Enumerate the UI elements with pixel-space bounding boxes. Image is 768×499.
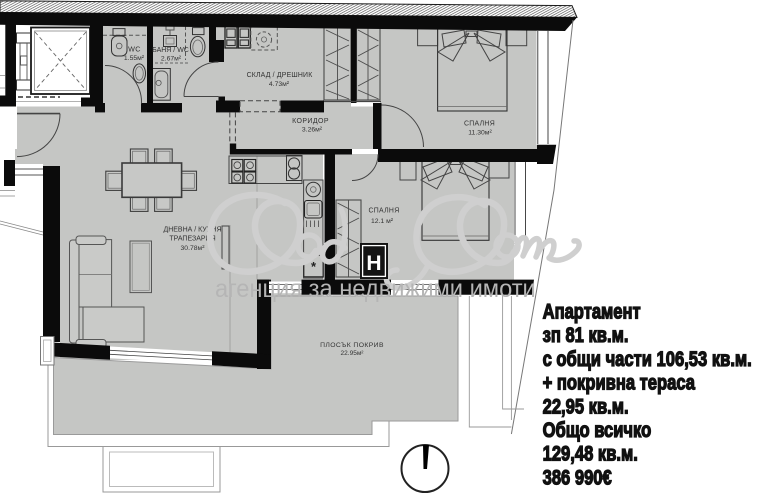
svg-text:ПЛОСЪК ПОКРИВ: ПЛОСЪК ПОКРИВ — [320, 342, 384, 349]
svg-text:зп 81 кв.м.: зп 81 кв.м. — [543, 324, 629, 347]
svg-text:3.26м²: 3.26м² — [302, 127, 323, 134]
svg-text:СПАЛНЯ: СПАЛНЯ — [369, 208, 400, 215]
svg-text:22,95 кв.м.: 22,95 кв.м. — [543, 396, 629, 419]
svg-text:11.30м²: 11.30м² — [468, 130, 492, 137]
svg-text:12.1 м²: 12.1 м² — [371, 218, 394, 225]
svg-text:агенция за недвижими имоти: агенция за недвижими имоти — [215, 275, 536, 303]
svg-text:30.78м²: 30.78м² — [181, 245, 206, 252]
svg-text:СКЛАД / ДРЕШНИК: СКЛАД / ДРЕШНИК — [247, 72, 313, 79]
svg-text:4.73м²: 4.73м² — [269, 81, 290, 88]
svg-text:СПАЛНЯ: СПАЛНЯ — [464, 121, 495, 128]
svg-text:Общо всичко: Общо всичко — [543, 419, 652, 442]
svg-text:КОРИДОР: КОРИДОР — [292, 118, 329, 125]
svg-text:129,48 кв.м.: 129,48 кв.м. — [543, 443, 638, 466]
svg-text:WC: WC — [128, 45, 141, 54]
svg-text:386 990€: 386 990€ — [543, 467, 613, 490]
svg-text:2.67м²: 2.67м² — [161, 55, 182, 62]
svg-text:Н: Н — [366, 252, 381, 275]
svg-text:Апартамент: Апартамент — [543, 301, 641, 324]
svg-text:БАНЯ / WC: БАНЯ / WC — [152, 47, 189, 54]
svg-text:1.55м²: 1.55м² — [124, 55, 145, 62]
svg-text:с общи части 106,53 кв.м.: с общи части 106,53 кв.м. — [543, 348, 752, 371]
svg-text:22.95м²: 22.95м² — [341, 350, 365, 357]
svg-text:+ покривна тераса: + покривна тераса — [543, 372, 696, 395]
